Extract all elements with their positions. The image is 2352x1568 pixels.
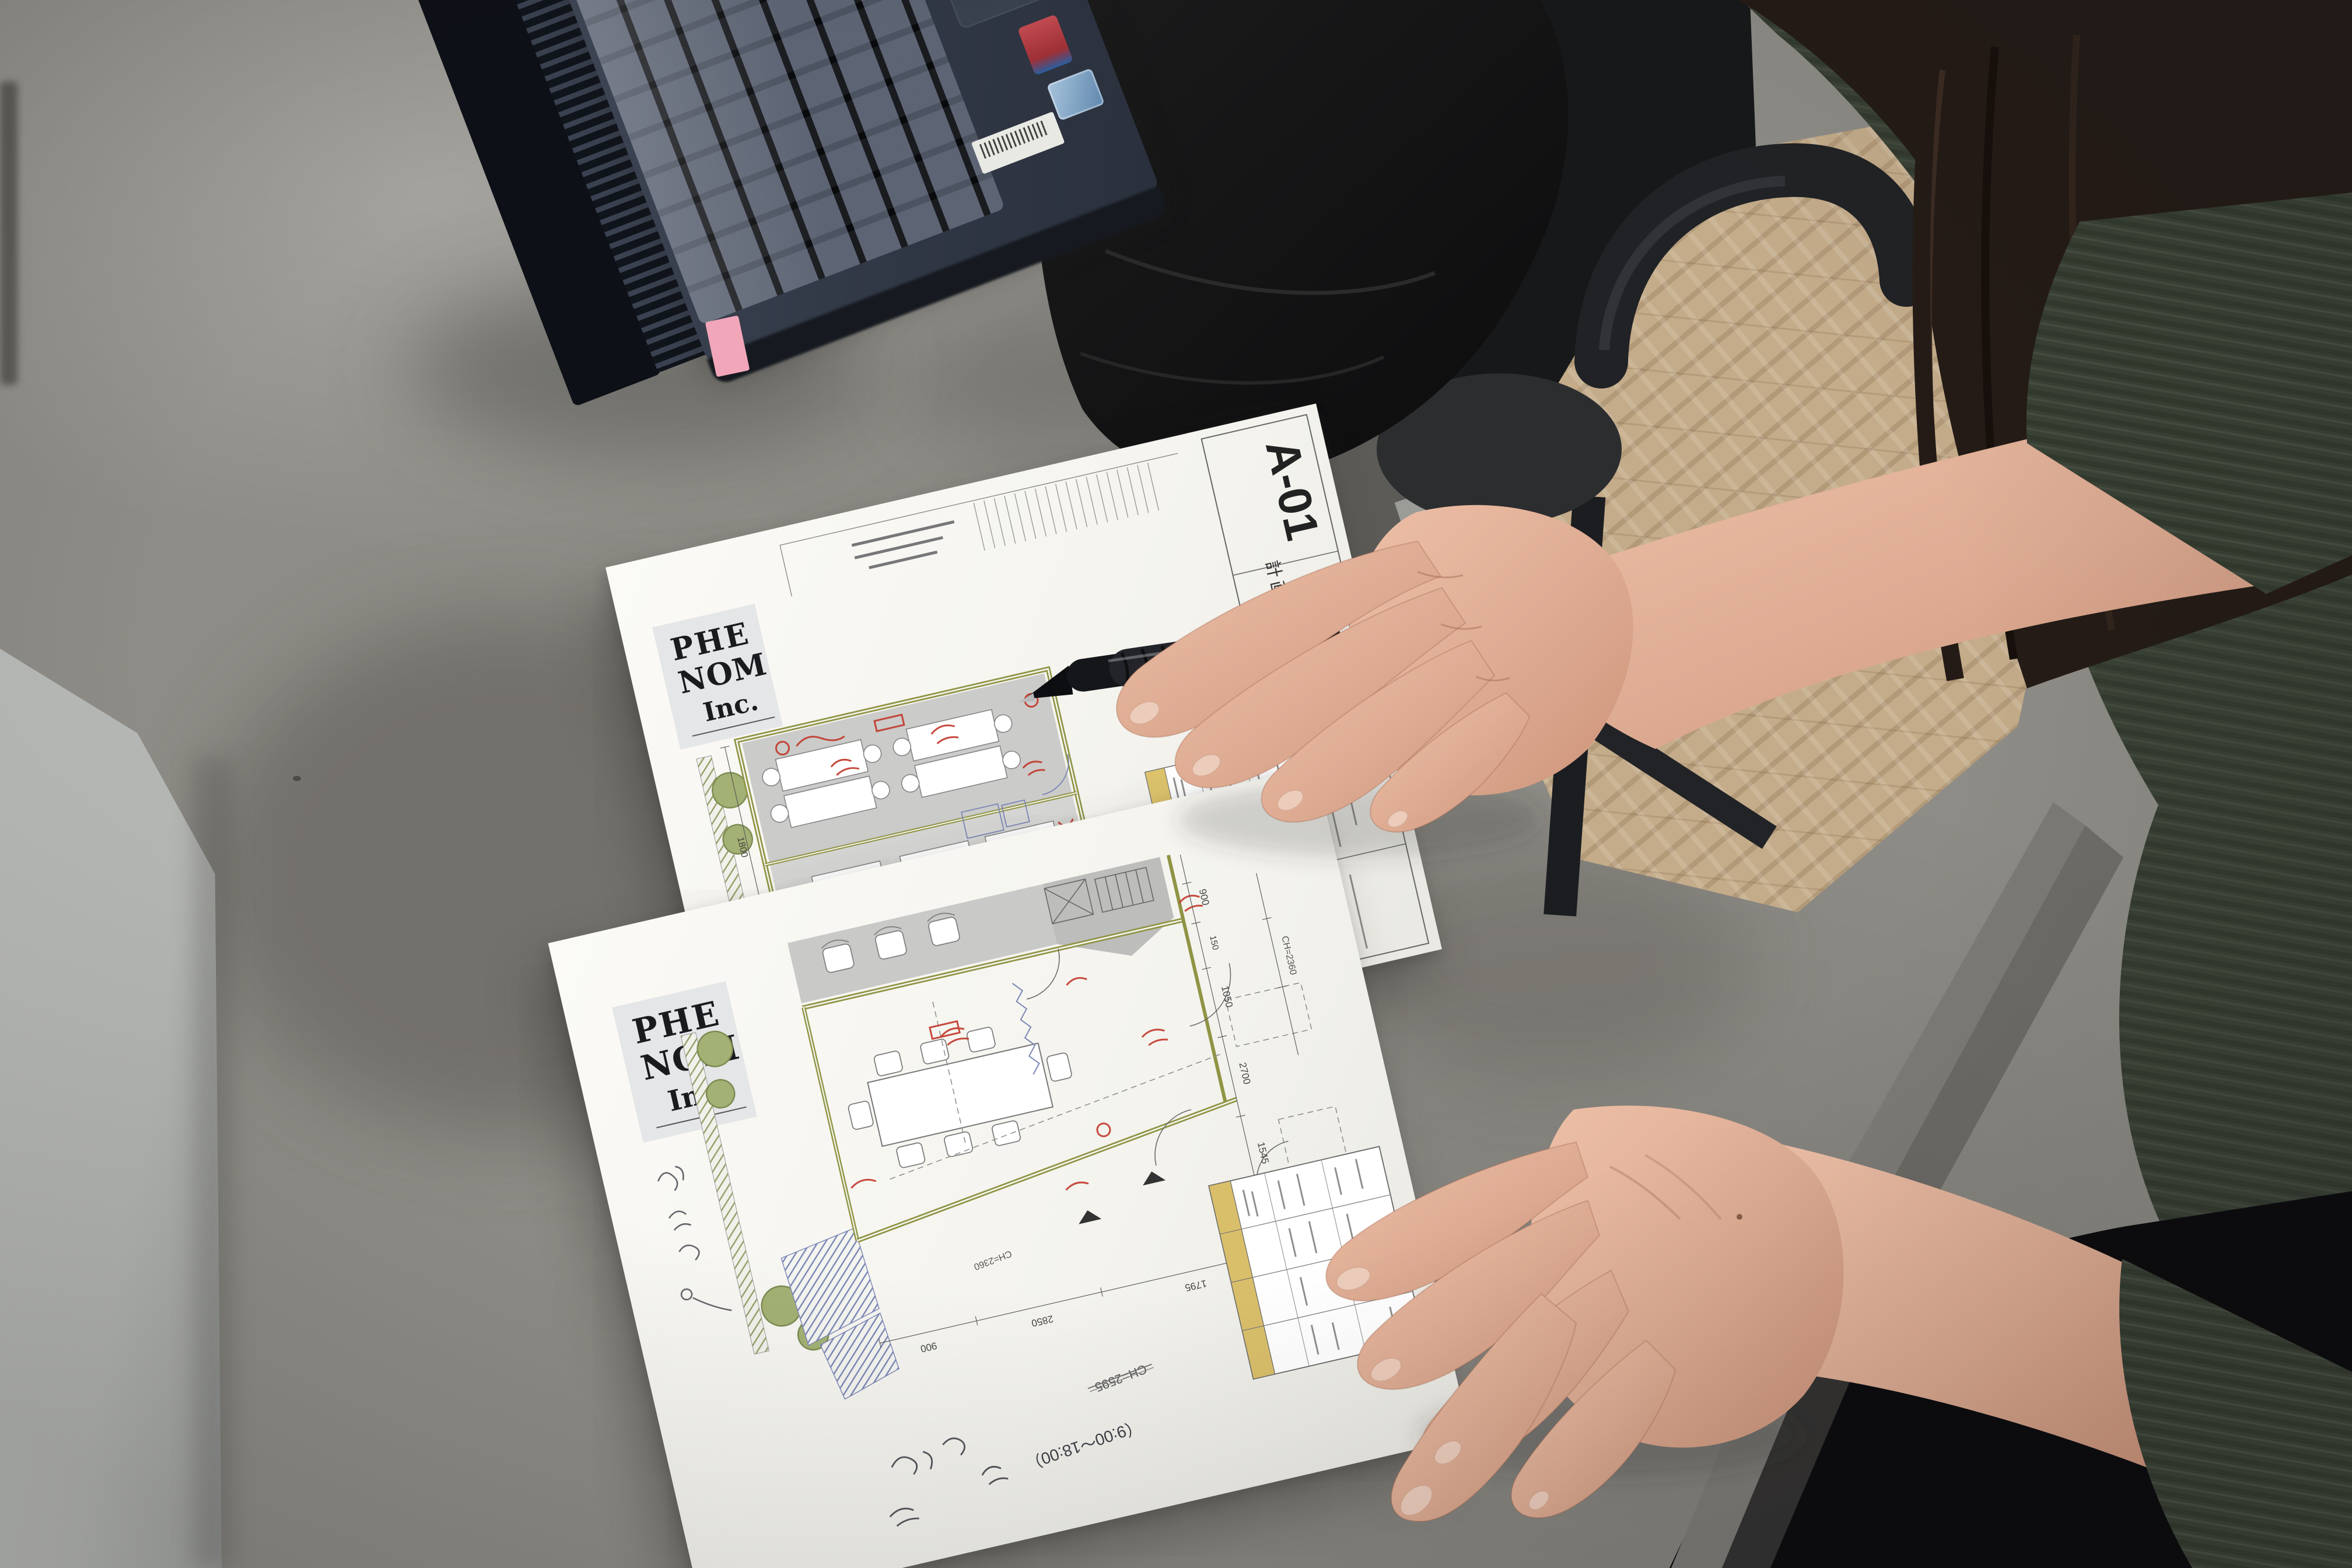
left-sleeve-cuff bbox=[2119, 1259, 2352, 1568]
photo-scene: PHE NOM Inc. bbox=[0, 0, 2352, 1568]
pen-tip-metal bbox=[1018, 693, 1035, 703]
pen-tip-cone bbox=[1020, 666, 1073, 702]
hands-layer bbox=[0, 0, 2352, 1568]
left-hand bbox=[1326, 1105, 2352, 1568]
right-hand-with-pen bbox=[1013, 192, 2352, 857]
